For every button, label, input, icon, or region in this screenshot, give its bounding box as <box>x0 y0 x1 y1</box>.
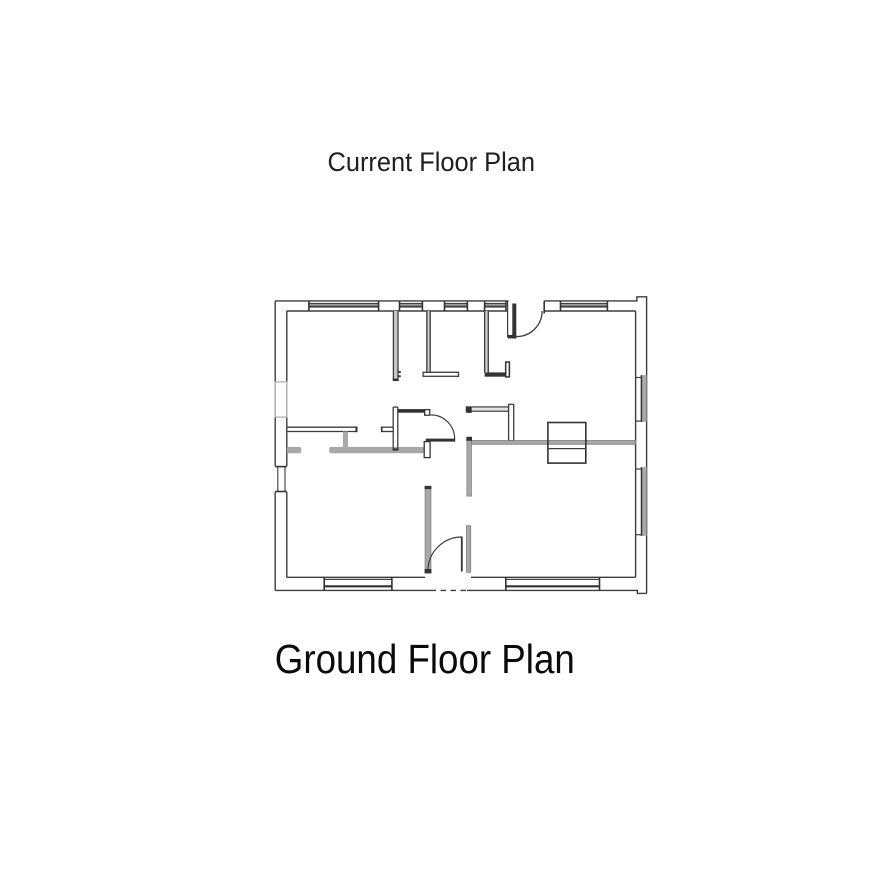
svg-text:Ground Floor Plan: Ground Floor Plan <box>275 636 575 682</box>
svg-text:Current Floor Plan: Current Floor Plan <box>328 147 536 177</box>
